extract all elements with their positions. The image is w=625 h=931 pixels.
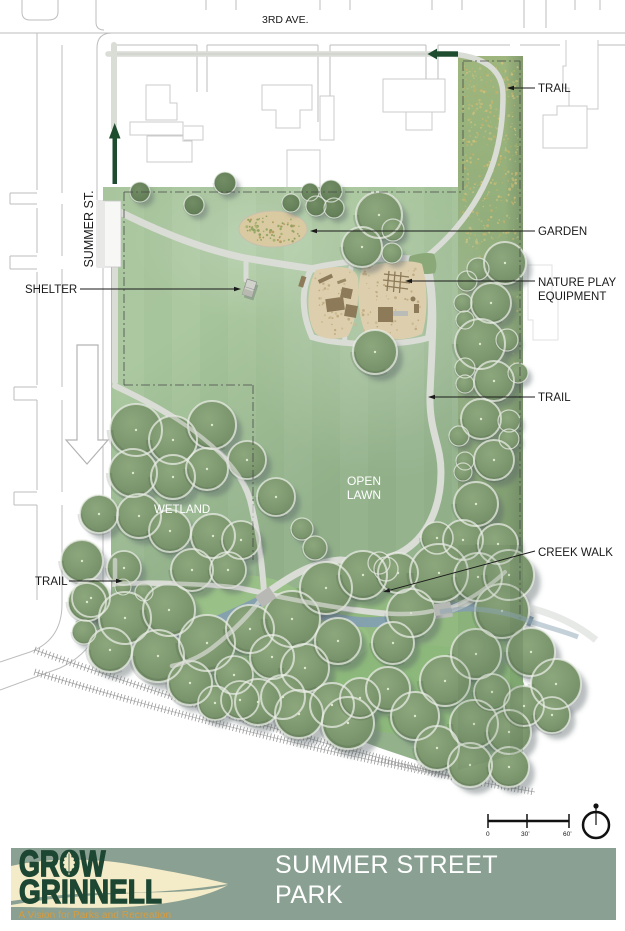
svg-text:EQUIPMENT: EQUIPMENT: [538, 291, 606, 303]
svg-text:WETLAND: WETLAND: [154, 504, 210, 516]
svg-text:30’: 30’: [521, 831, 530, 838]
svg-text:TRAIL: TRAIL: [538, 83, 571, 95]
svg-text:NATURE PLAY: NATURE PLAY: [538, 277, 617, 289]
svg-text:OPEN: OPEN: [347, 474, 381, 488]
svg-text:SUMMER ST.: SUMMER ST.: [82, 190, 96, 267]
svg-text:SUMMER STREET: SUMMER STREET: [275, 851, 498, 879]
svg-text:SHELTER: SHELTER: [25, 284, 77, 296]
svg-text:GRINNELL: GRINNELL: [19, 874, 162, 911]
svg-text:0: 0: [486, 831, 490, 838]
svg-text:PARK: PARK: [275, 881, 343, 909]
svg-text:TRAIL: TRAIL: [538, 392, 571, 404]
svg-text:CREEK WALK: CREEK WALK: [538, 547, 613, 559]
svg-text:LAWN: LAWN: [347, 488, 381, 502]
svg-text:3RD AVE.: 3RD AVE.: [262, 14, 309, 26]
svg-text:GARDEN: GARDEN: [538, 226, 587, 238]
svg-text:A Vision for Parks and Recreat: A Vision for Parks and Recreation: [19, 910, 172, 921]
svg-text:60’: 60’: [563, 831, 572, 838]
svg-text:TRAIL: TRAIL: [35, 576, 68, 588]
